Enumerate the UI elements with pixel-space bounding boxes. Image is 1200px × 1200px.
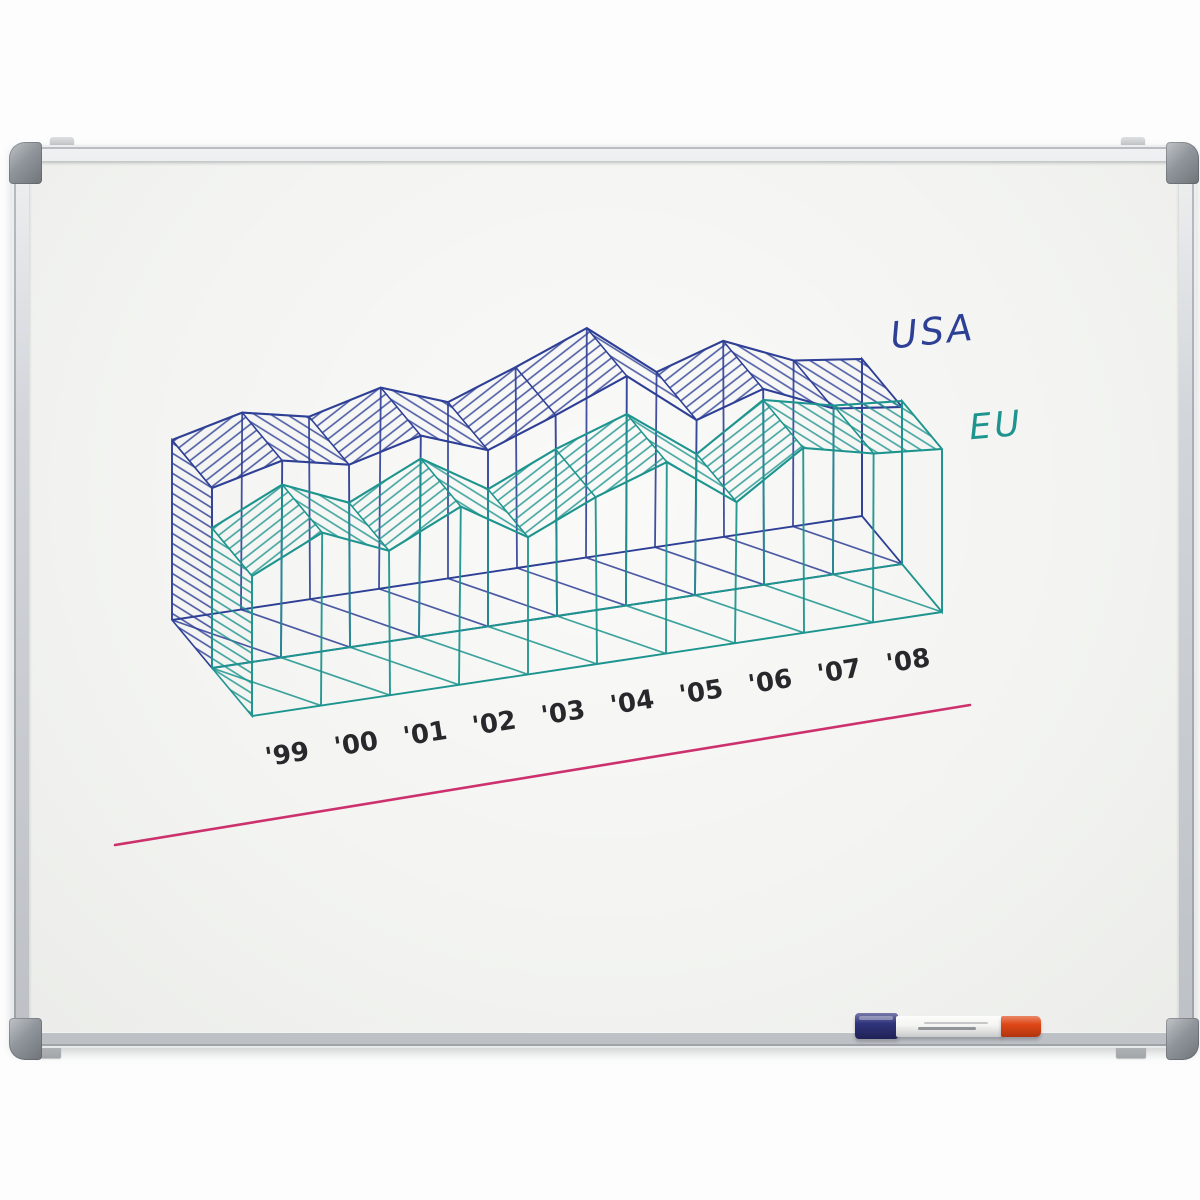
frame-corner-cap-top-left <box>9 142 42 184</box>
whiteboard-surface <box>29 161 1179 1033</box>
frame-corner-cap-top-right <box>1166 142 1199 184</box>
red-marker-cap <box>1001 1016 1041 1037</box>
whiteboard-frame <box>12 145 1196 1048</box>
blue-marker-cap-ridge <box>859 1016 893 1020</box>
marker-body-print <box>924 1022 988 1024</box>
frame-corner-cap-bottom-right <box>1166 1018 1199 1060</box>
frame-corner-cap-bottom-left <box>9 1018 42 1060</box>
marker-body <box>896 1016 1003 1037</box>
marker-body-print <box>918 1027 976 1030</box>
whiteboard-product-photo: '99'00'01'02'03'04'05'06'07'08USAEU <box>0 0 1200 1200</box>
blue-marker-cap <box>855 1013 898 1039</box>
